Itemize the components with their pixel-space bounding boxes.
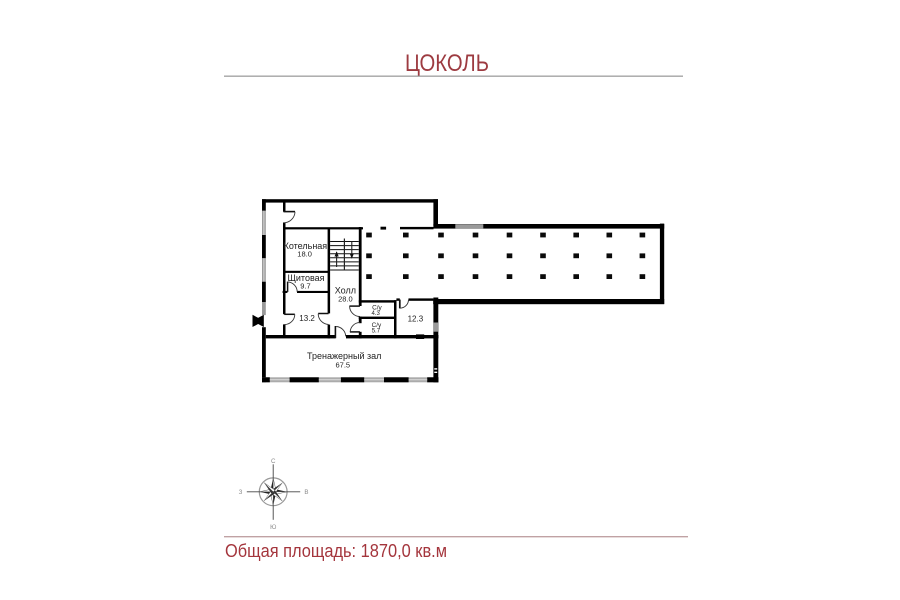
svg-text:28.0: 28.0 [338, 295, 353, 304]
svg-text:67.5: 67.5 [335, 360, 350, 369]
svg-text:9.7: 9.7 [300, 282, 310, 291]
svg-text:4.3: 4.3 [372, 311, 381, 317]
svg-text:Общая площадь: 1870,0 кв.м: Общая площадь: 1870,0 кв.м [225, 540, 447, 561]
svg-text:В: В [304, 489, 308, 496]
svg-text:13.2: 13.2 [299, 314, 315, 323]
svg-text:С: С [271, 458, 276, 465]
svg-text:18.0: 18.0 [297, 249, 312, 258]
svg-text:12.3: 12.3 [408, 315, 424, 324]
svg-text:Ю: Ю [270, 524, 276, 531]
svg-text:5.7: 5.7 [372, 329, 381, 335]
svg-text:З: З [239, 489, 243, 496]
svg-text:ЦОКОЛЬ: ЦОКОЛЬ [405, 50, 489, 77]
svg-text:Тренажерный зал: Тренажерный зал [307, 351, 381, 361]
